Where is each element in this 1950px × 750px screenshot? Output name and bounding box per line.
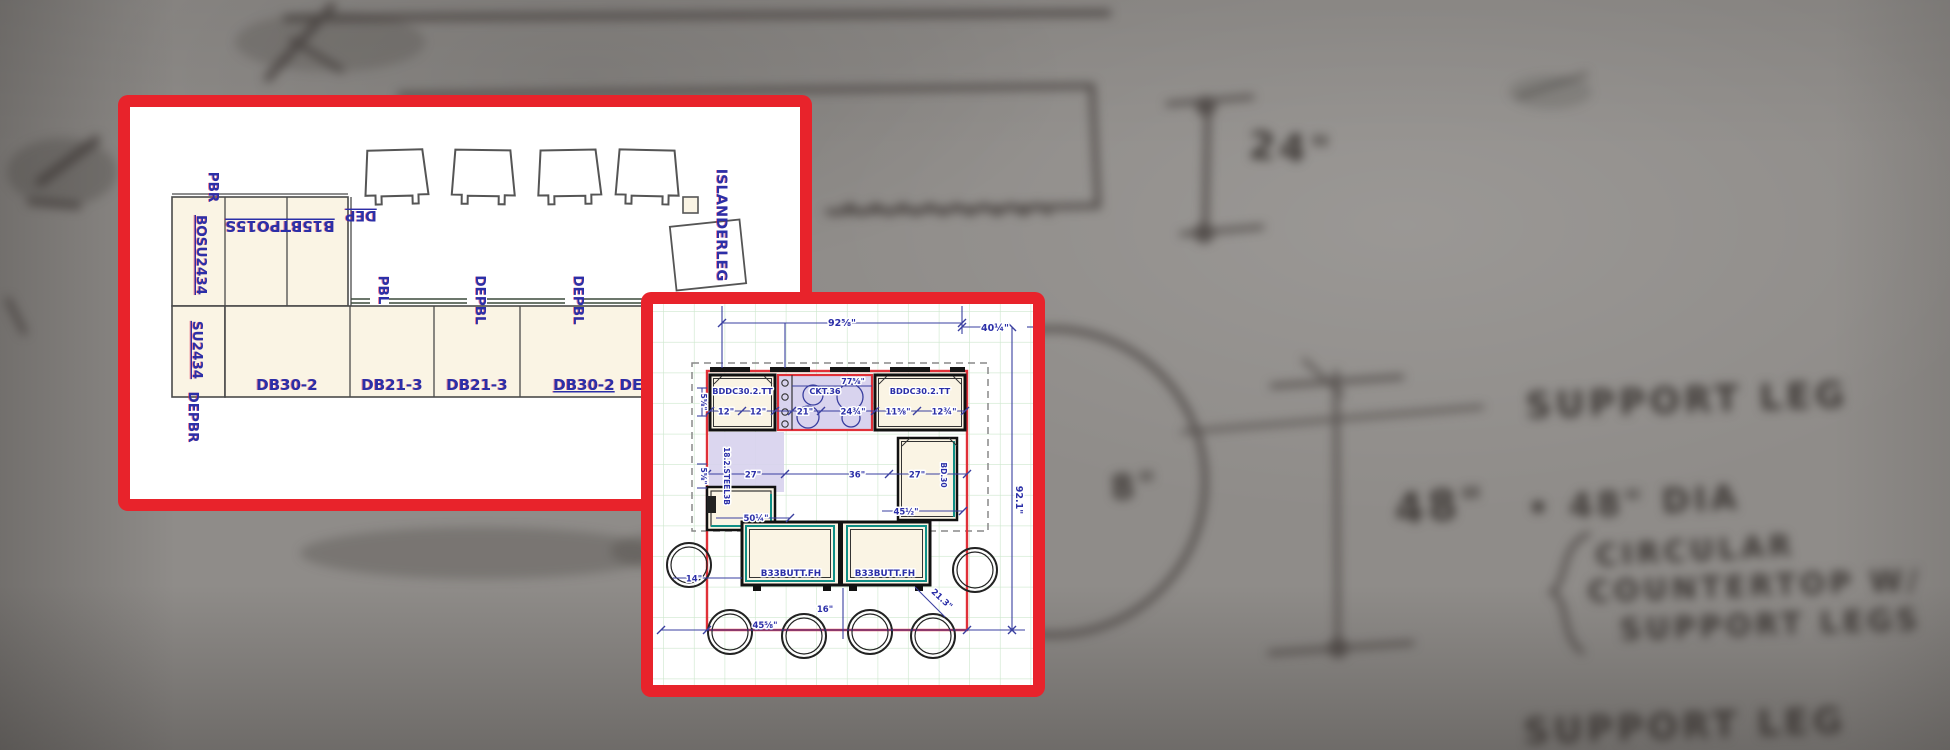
cell-label-db30-2b: DB30-2 bbox=[553, 376, 614, 394]
dim-24: 24¾" bbox=[840, 408, 865, 418]
smudge bbox=[7, 138, 117, 206]
scanned-plan-collage: { "colors": { "panel_border": "#e8232b",… bbox=[0, 0, 1950, 750]
dim-50: 50¼" bbox=[743, 513, 768, 524]
edge-dash bbox=[710, 367, 750, 372]
island-plan-panel: 92⅝" 40¼" 92.1" BDDC30.2.TT CKT.36 77⅝" … bbox=[641, 292, 1045, 697]
cabinet-bddc-left bbox=[710, 375, 775, 430]
chair-symbol bbox=[538, 149, 602, 204]
cabinet-bddc-right bbox=[875, 375, 965, 430]
smudge bbox=[300, 527, 660, 579]
sketch-leg-foot bbox=[1331, 641, 1345, 655]
edge-dash bbox=[890, 367, 930, 372]
sketch-arrow-top bbox=[1199, 99, 1213, 113]
sketch-arrow-bottom bbox=[1197, 226, 1211, 240]
label-dep: DEP bbox=[345, 207, 376, 223]
dim-right-offset: 40¼" bbox=[981, 323, 1009, 334]
dim-45a: 45½" bbox=[893, 507, 918, 518]
cell-label-db30-2: DB30-2 bbox=[256, 376, 317, 394]
note-48in: 48" bbox=[1393, 477, 1489, 534]
dim-cooktop-width: 77⅝" bbox=[841, 377, 865, 386]
label-bddc-right: BDDC30.2.TT bbox=[890, 386, 951, 396]
note-support-leg-bottom: SUPPORT LEG bbox=[1523, 701, 1847, 750]
dim-right-height: 92.1" bbox=[1013, 486, 1024, 514]
sketch-left-mark3 bbox=[8, 300, 24, 332]
filler-block bbox=[707, 496, 716, 513]
smudge bbox=[1508, 75, 1592, 109]
dim-12b: 12" bbox=[750, 408, 766, 418]
label-su2434: SU2434 bbox=[189, 321, 205, 379]
label-depbr: DEPBR bbox=[185, 391, 201, 443]
dim-14: 14" bbox=[686, 575, 702, 585]
chair-symbols bbox=[364, 149, 746, 290]
label-b33-right: B33BUTT.FH bbox=[855, 569, 915, 579]
dim-27b: 27" bbox=[909, 471, 925, 481]
sketch-brace bbox=[1552, 534, 1588, 652]
island-plan-drawing: 92⅝" 40¼" 92.1" BDDC30.2.TT CKT.36 77⅝" … bbox=[653, 304, 1033, 685]
steel-filler bbox=[709, 432, 784, 492]
dim-12c: 12¾" bbox=[931, 408, 956, 418]
dim-11: 11⅝" bbox=[885, 408, 910, 418]
note-circular: CIRCULAR bbox=[1595, 529, 1797, 574]
island-top-edge bbox=[710, 367, 965, 372]
smudge bbox=[235, 12, 425, 72]
sketch-leg-line bbox=[1336, 372, 1338, 652]
label-b15btpo15s: B15BTPO15S bbox=[225, 217, 334, 235]
chair-symbol bbox=[615, 149, 679, 204]
edge-dash bbox=[950, 367, 965, 372]
label-steel: 18.2.STEEL3B bbox=[722, 447, 731, 505]
dim-5a: 5⅝" bbox=[699, 394, 708, 411]
label-bddc-left: BDDC30.2.TT bbox=[712, 386, 773, 396]
sketch-top-line bbox=[286, 13, 1108, 18]
note-8in: 8" bbox=[1109, 464, 1162, 509]
label-depbl-2: DEPBL bbox=[570, 275, 586, 325]
label-ckt36: CKT.36 bbox=[809, 386, 841, 396]
dim-36: 36" bbox=[849, 471, 865, 481]
b33-divider bbox=[838, 523, 843, 584]
label-bd30: BD.30 bbox=[939, 462, 948, 487]
label-b33-left: B33BUTT.FH bbox=[761, 569, 821, 579]
dim-27a: 27" bbox=[745, 471, 761, 481]
label-depbl-1: DEPBL bbox=[472, 275, 488, 325]
dim-12a: 12" bbox=[718, 408, 734, 418]
b33-cabinets bbox=[742, 522, 930, 591]
sketch-leader-line bbox=[1183, 407, 1482, 432]
label-pbr: PBR bbox=[205, 172, 221, 203]
foot bbox=[753, 585, 761, 591]
dim-16: 16" bbox=[817, 605, 833, 615]
label-bosu2434: BOSU2434 bbox=[193, 215, 209, 295]
foot bbox=[823, 585, 831, 591]
sketch-dim-line bbox=[1205, 100, 1208, 240]
note-support-legs: SUPPORT LEGS bbox=[1619, 602, 1922, 648]
dim-5b: 5⅝" bbox=[699, 468, 708, 485]
label-islanderleg: ISLANDERLEG bbox=[713, 169, 729, 282]
note-24in: 24" bbox=[1247, 123, 1335, 173]
chair-symbol bbox=[452, 150, 516, 205]
sketch-dim-cap-bottom bbox=[1182, 227, 1262, 234]
foot bbox=[849, 585, 857, 591]
edge-dash bbox=[770, 367, 810, 372]
island-leg-plate bbox=[670, 220, 746, 291]
handwritten-notes: 24" 8" 48" SUPPORT LEG • 48" DIA CIRCULA… bbox=[1109, 123, 1922, 750]
dim-45b: 45⅝" bbox=[752, 621, 777, 631]
cell-label-db21-3: DB21-3 bbox=[361, 376, 422, 394]
cell-label-de: DE bbox=[620, 376, 643, 394]
label-pbl: PBL bbox=[375, 276, 391, 305]
dim-top-width: 92⅝" bbox=[828, 318, 856, 329]
island-leg-block bbox=[683, 197, 698, 213]
dim-21: 21" bbox=[797, 408, 813, 418]
note-support-leg-top: SUPPORT LEG bbox=[1525, 375, 1849, 427]
edge-dash bbox=[830, 367, 870, 372]
note-dia: • 48" DIA bbox=[1526, 478, 1741, 529]
chair-symbol bbox=[364, 149, 428, 205]
upper-cabinets bbox=[710, 375, 965, 430]
cell-label-db21-3b: DB21-3 bbox=[446, 376, 507, 394]
